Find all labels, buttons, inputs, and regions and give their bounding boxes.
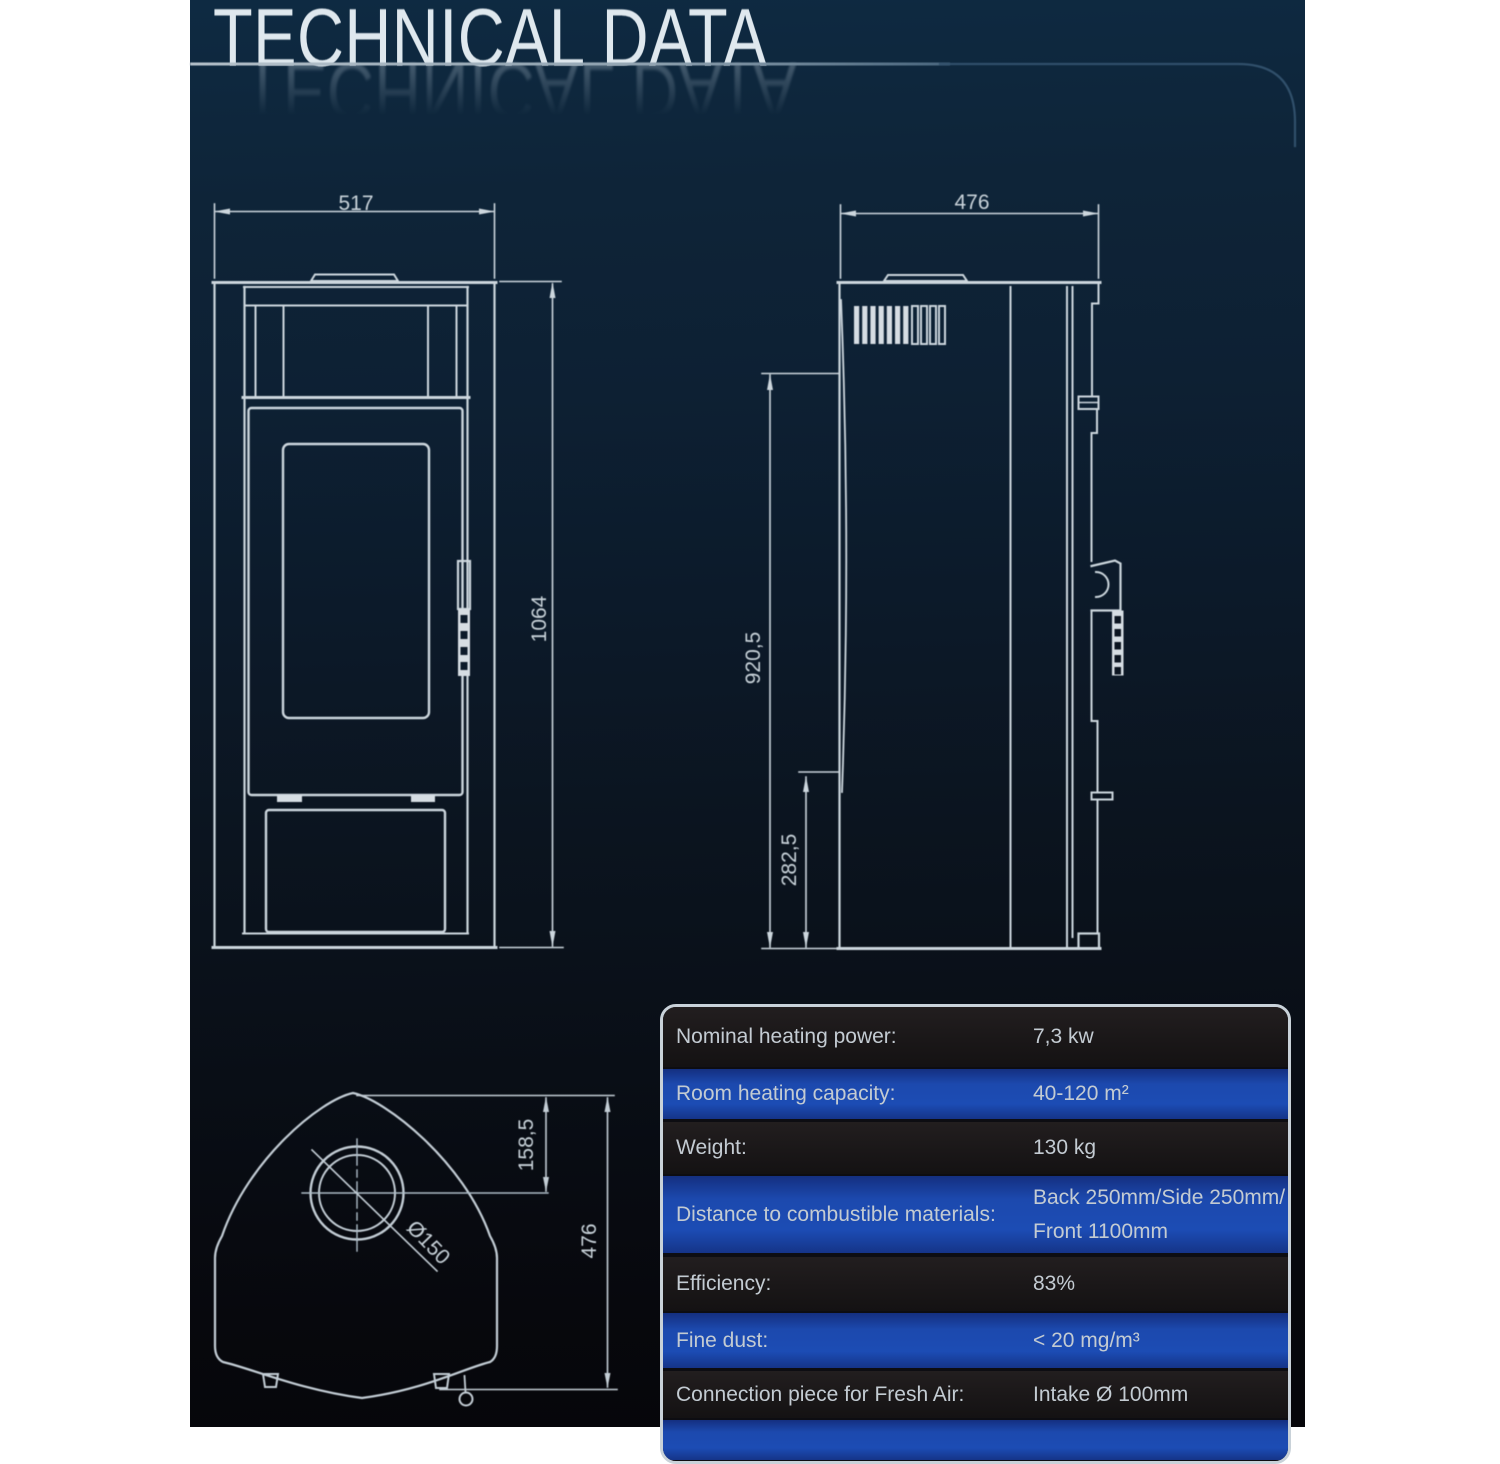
svg-text:1064: 1064 bbox=[528, 595, 551, 642]
svg-text:Ø150: Ø150 bbox=[402, 1216, 454, 1269]
svg-text:282,5: 282,5 bbox=[778, 834, 801, 887]
svg-text:476: 476 bbox=[578, 1223, 601, 1258]
svg-text:158,5: 158,5 bbox=[515, 1119, 538, 1172]
svg-text:920,5: 920,5 bbox=[742, 632, 765, 685]
svg-text:476: 476 bbox=[954, 191, 989, 214]
